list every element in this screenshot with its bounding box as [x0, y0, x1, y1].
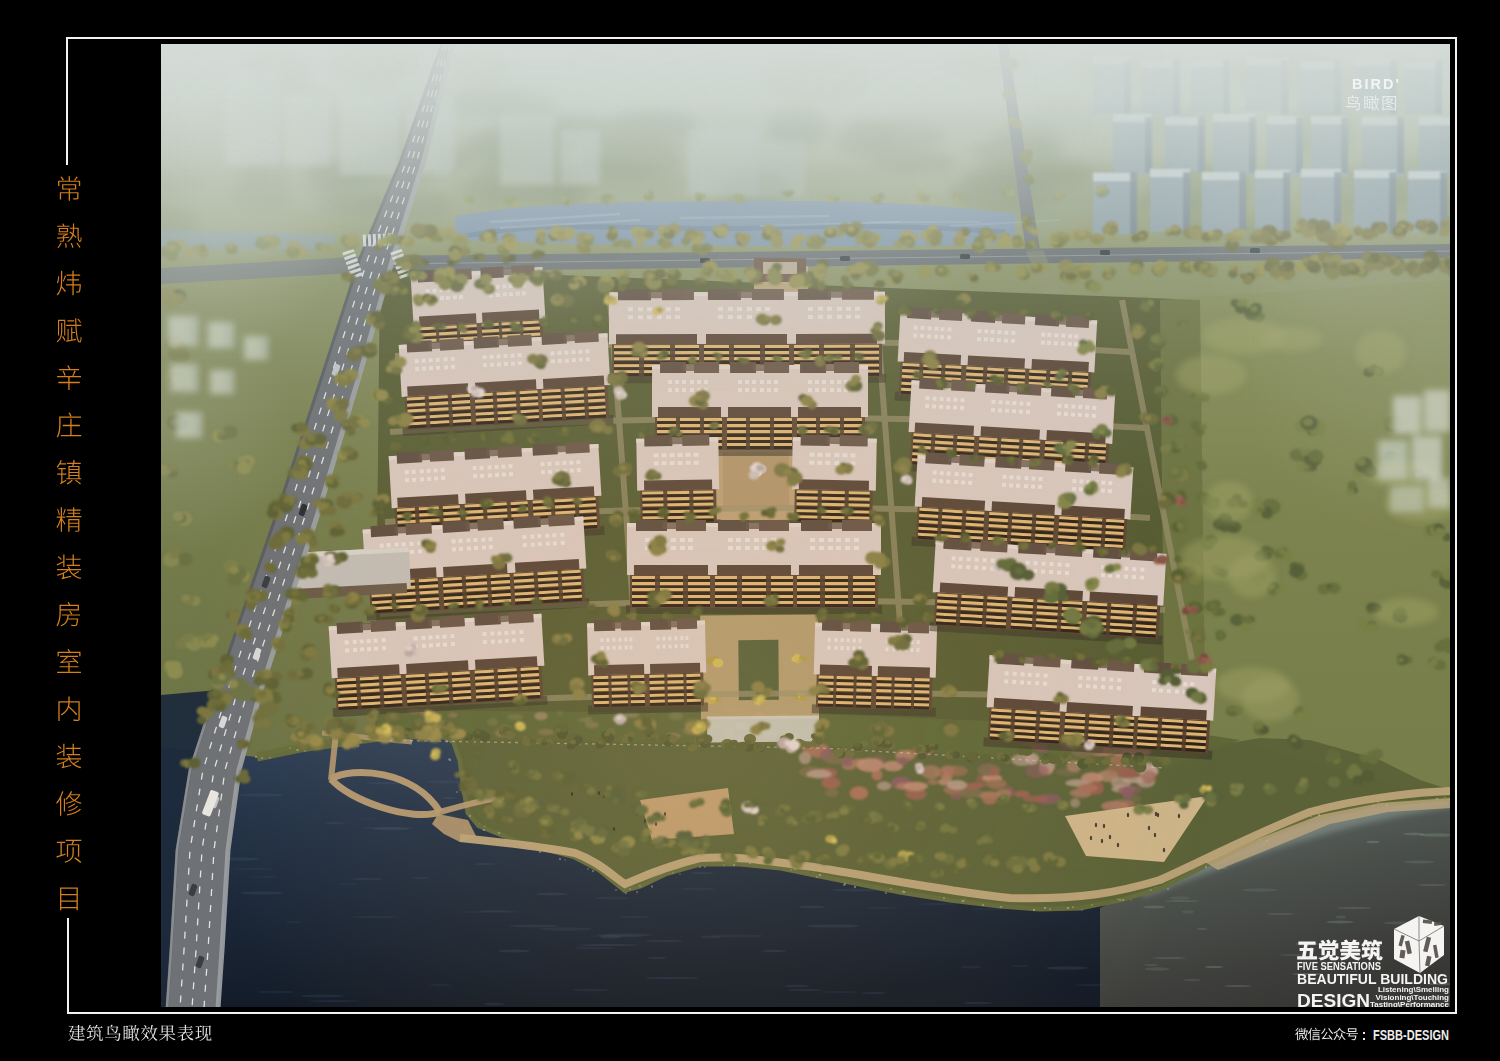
svg-text:FSBB-DESIGN: FSBB-DESIGN	[1373, 1027, 1449, 1043]
svg-text:FIVE SENSATIONS: FIVE SENSATIONS	[1297, 960, 1381, 972]
svg-text:DESIGN: DESIGN	[1297, 990, 1370, 1011]
svg-text:Tasting\Performance: Tasting\Performance	[1370, 1000, 1450, 1009]
svg-text:BIRD': BIRD'	[1352, 76, 1401, 92]
